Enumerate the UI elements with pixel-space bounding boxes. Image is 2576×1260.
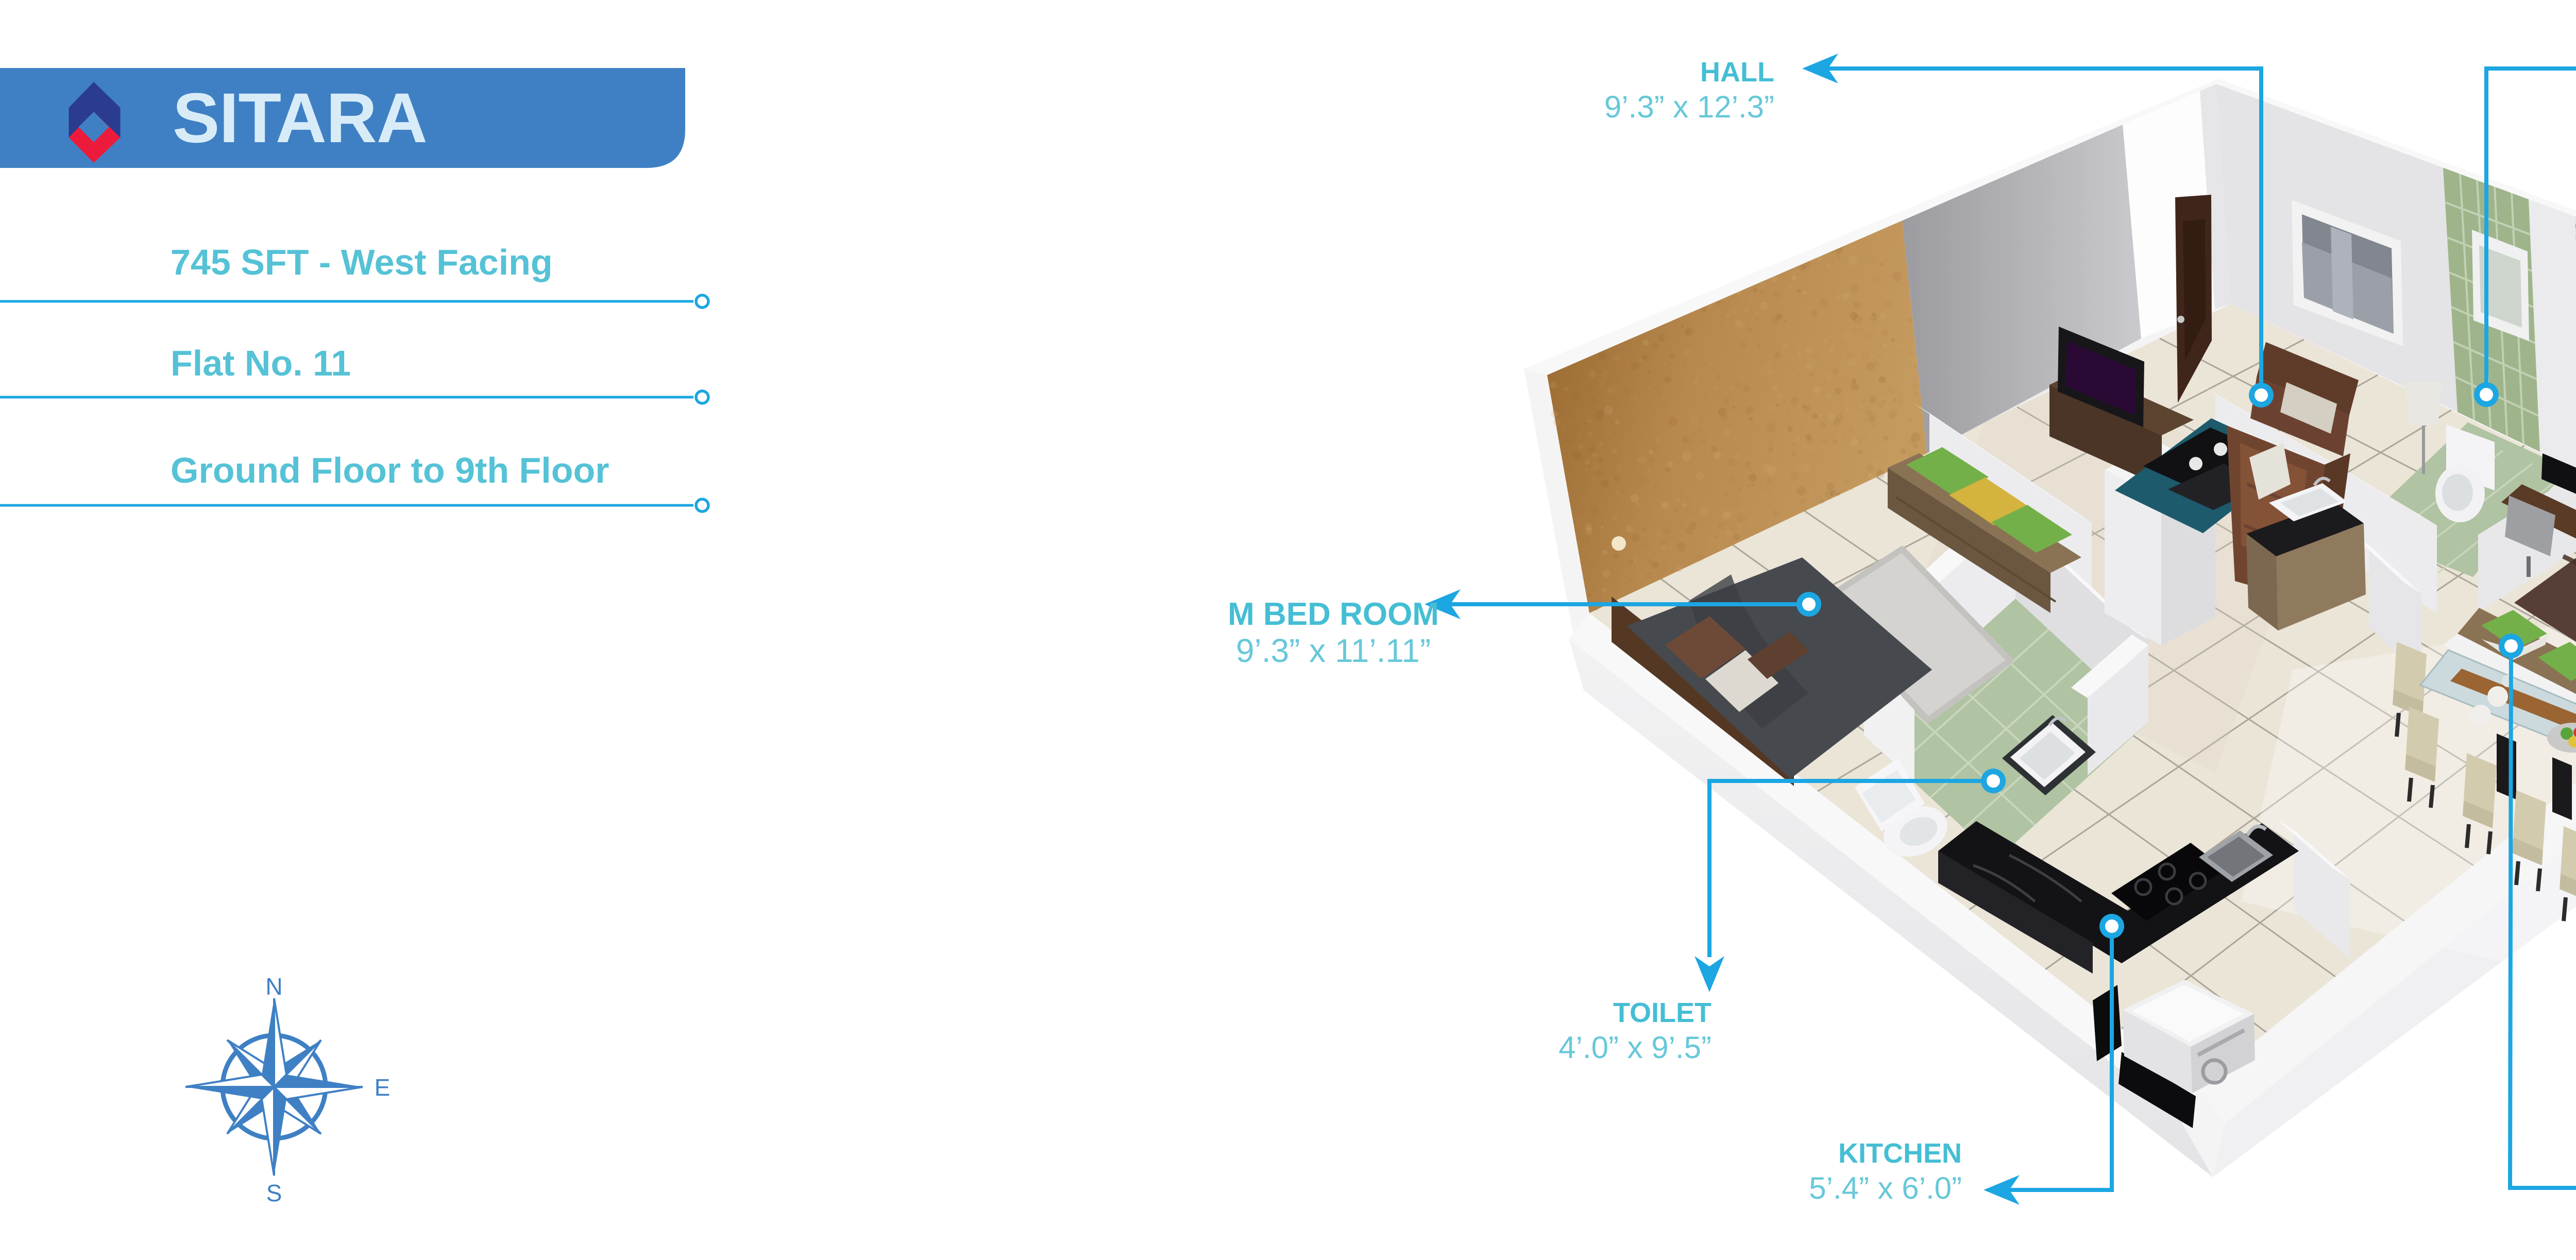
svg-text:9’.3” x 11’.11”: 9’.3” x 11’.11”: [1236, 632, 1431, 669]
svg-text:KITCHEN: KITCHEN: [1838, 1138, 1962, 1169]
svg-text:SITARA: SITARA: [173, 79, 427, 158]
svg-text:Flat No. 11: Flat No. 11: [171, 343, 351, 383]
svg-text:TOILET: TOILET: [1613, 997, 1711, 1028]
svg-text:S: S: [266, 1180, 282, 1206]
svg-text:9’.3” x 12’.3”: 9’.3” x 12’.3”: [1604, 90, 1774, 124]
svg-text:N: N: [265, 973, 282, 1000]
svg-text:M BED ROOM: M BED ROOM: [1228, 597, 1439, 632]
svg-text:745 SFT - West Facing: 745 SFT - West Facing: [171, 242, 553, 282]
svg-text:Ground Floor to 9th Floor: Ground Floor to 9th Floor: [171, 450, 609, 490]
svg-text:E: E: [375, 1074, 391, 1101]
svg-text:5’.4” x 6’.0”: 5’.4” x 6’.0”: [1809, 1171, 1962, 1205]
svg-text:4’.0” x 9’.5”: 4’.0” x 9’.5”: [1558, 1030, 1711, 1065]
svg-text:HALL: HALL: [1700, 57, 1774, 88]
